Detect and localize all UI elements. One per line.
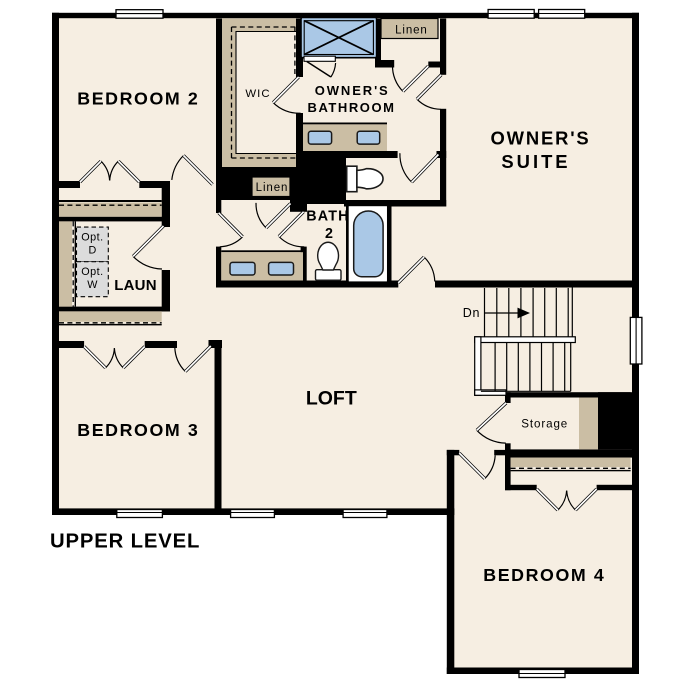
svg-text:W: W: [87, 279, 98, 291]
svg-text:Linen: Linen: [395, 25, 428, 37]
svg-text:Storage: Storage: [521, 417, 568, 430]
svg-text:Dn: Dn: [463, 306, 481, 320]
svg-text:BATH: BATH: [306, 209, 349, 225]
svg-text:WIC: WIC: [245, 88, 270, 100]
svg-text:Opt.: Opt.: [81, 266, 103, 278]
svg-text:OWNER'S: OWNER'S: [315, 83, 390, 98]
svg-text:BEDROOM 3: BEDROOM 3: [77, 420, 199, 440]
svg-text:BEDROOM 4: BEDROOM 4: [483, 565, 605, 585]
svg-text:LAUN: LAUN: [114, 277, 156, 294]
svg-text:Opt.: Opt.: [81, 232, 103, 244]
svg-text:D: D: [88, 245, 96, 257]
svg-text:OWNER'S: OWNER'S: [490, 128, 590, 149]
svg-text:BATHROOM: BATHROOM: [308, 100, 396, 115]
svg-text:UPPER LEVEL: UPPER LEVEL: [50, 531, 200, 553]
svg-text:SUITE: SUITE: [501, 151, 570, 172]
svg-text:Linen: Linen: [256, 182, 289, 194]
svg-text:BEDROOM 2: BEDROOM 2: [77, 89, 199, 109]
svg-text:LOFT: LOFT: [306, 388, 357, 410]
svg-text:2: 2: [325, 226, 333, 242]
